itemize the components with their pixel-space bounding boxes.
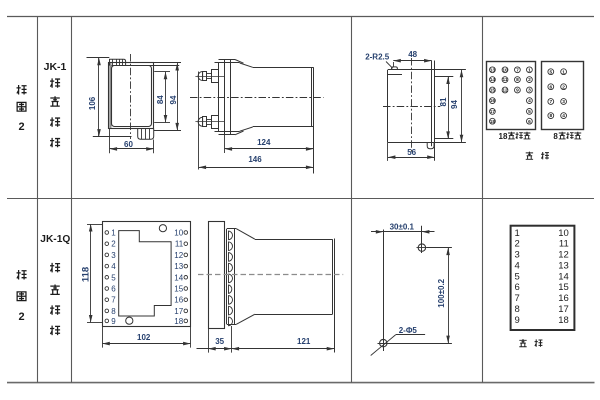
svg-text:2-Φ5: 2-Φ5 <box>399 326 418 335</box>
svg-text:2: 2 <box>562 84 565 90</box>
svg-text:48: 48 <box>408 50 417 59</box>
svg-text:8: 8 <box>549 113 552 119</box>
svg-text:81: 81 <box>439 97 448 106</box>
svg-text:14: 14 <box>174 273 183 282</box>
svg-text:56: 56 <box>407 148 416 157</box>
svg-text:17: 17 <box>490 109 496 115</box>
svg-text:8: 8 <box>516 77 519 83</box>
svg-text:7: 7 <box>515 293 520 304</box>
svg-text:6: 6 <box>549 84 552 90</box>
svg-text:1: 1 <box>515 228 520 239</box>
svg-text:3: 3 <box>562 99 565 105</box>
svg-text:6: 6 <box>528 119 531 125</box>
svg-text:11: 11 <box>559 239 569 250</box>
svg-text:94: 94 <box>169 95 178 104</box>
svg-text:4: 4 <box>562 113 565 119</box>
svg-text:5: 5 <box>111 273 116 282</box>
svg-text:3: 3 <box>515 250 520 261</box>
svg-text:7: 7 <box>549 99 552 105</box>
svg-text:9: 9 <box>111 317 116 326</box>
svg-text:30±0.1: 30±0.1 <box>390 223 415 232</box>
svg-text:13: 13 <box>490 67 496 73</box>
svg-text:5: 5 <box>515 271 520 282</box>
svg-text:1: 1 <box>562 69 565 75</box>
svg-text:18: 18 <box>490 119 496 125</box>
svg-text:18: 18 <box>558 315 569 326</box>
svg-text:4: 4 <box>528 98 531 104</box>
svg-text:16: 16 <box>558 293 569 304</box>
svg-text:2: 2 <box>515 239 520 250</box>
svg-text:146: 146 <box>248 155 262 164</box>
svg-text:14: 14 <box>490 77 496 83</box>
svg-text:10: 10 <box>558 228 569 239</box>
svg-text:2: 2 <box>18 121 24 133</box>
svg-text:6: 6 <box>111 285 116 294</box>
svg-text:12: 12 <box>558 250 569 261</box>
svg-text:15: 15 <box>558 282 569 293</box>
svg-text:5: 5 <box>528 109 531 115</box>
svg-text:118: 118 <box>81 267 92 282</box>
svg-text:121: 121 <box>297 337 311 346</box>
svg-text:2-R2.5: 2-R2.5 <box>365 52 390 61</box>
svg-text:8: 8 <box>553 132 558 141</box>
svg-text:15: 15 <box>490 88 496 94</box>
svg-text:3: 3 <box>528 88 531 94</box>
svg-text:18: 18 <box>499 132 508 141</box>
svg-text:84: 84 <box>156 95 165 104</box>
svg-text:12: 12 <box>502 88 508 94</box>
svg-text:8: 8 <box>515 304 520 315</box>
svg-text:94: 94 <box>450 100 459 109</box>
svg-text:11: 11 <box>502 77 507 83</box>
svg-text:16: 16 <box>490 98 496 104</box>
svg-text:8: 8 <box>111 307 116 316</box>
svg-text:4: 4 <box>111 262 116 271</box>
svg-text:17: 17 <box>174 307 183 316</box>
svg-text:12: 12 <box>174 251 183 260</box>
svg-text:7: 7 <box>111 296 116 305</box>
svg-text:13: 13 <box>558 261 569 272</box>
svg-text:2: 2 <box>111 240 116 249</box>
svg-text:14: 14 <box>558 271 569 282</box>
svg-text:13: 13 <box>174 262 183 271</box>
svg-text:18: 18 <box>174 317 183 326</box>
svg-text:124: 124 <box>257 138 271 147</box>
svg-text:102: 102 <box>137 333 151 342</box>
svg-text:1: 1 <box>111 229 116 238</box>
svg-text:35: 35 <box>215 337 224 346</box>
svg-text:1: 1 <box>528 67 531 73</box>
svg-text:60: 60 <box>124 140 133 149</box>
svg-text:17: 17 <box>558 304 569 315</box>
svg-text:9: 9 <box>516 88 519 94</box>
svg-text:16: 16 <box>174 296 183 305</box>
svg-text:7: 7 <box>516 67 519 73</box>
svg-text:15: 15 <box>174 285 183 294</box>
svg-text:5: 5 <box>549 69 552 75</box>
svg-text:JK-1Q: JK-1Q <box>40 234 70 245</box>
svg-text:4: 4 <box>515 261 520 272</box>
svg-text:10: 10 <box>174 229 183 238</box>
svg-text:9: 9 <box>515 315 520 326</box>
svg-text:3: 3 <box>111 251 116 260</box>
svg-text:100±0.2: 100±0.2 <box>437 278 446 307</box>
svg-text:2: 2 <box>528 77 531 83</box>
svg-text:2: 2 <box>18 311 24 323</box>
svg-text:JK-1: JK-1 <box>44 61 67 73</box>
svg-text:10: 10 <box>502 67 508 73</box>
svg-text:106: 106 <box>88 96 97 110</box>
svg-text:11: 11 <box>175 240 184 249</box>
svg-text:6: 6 <box>515 282 520 293</box>
